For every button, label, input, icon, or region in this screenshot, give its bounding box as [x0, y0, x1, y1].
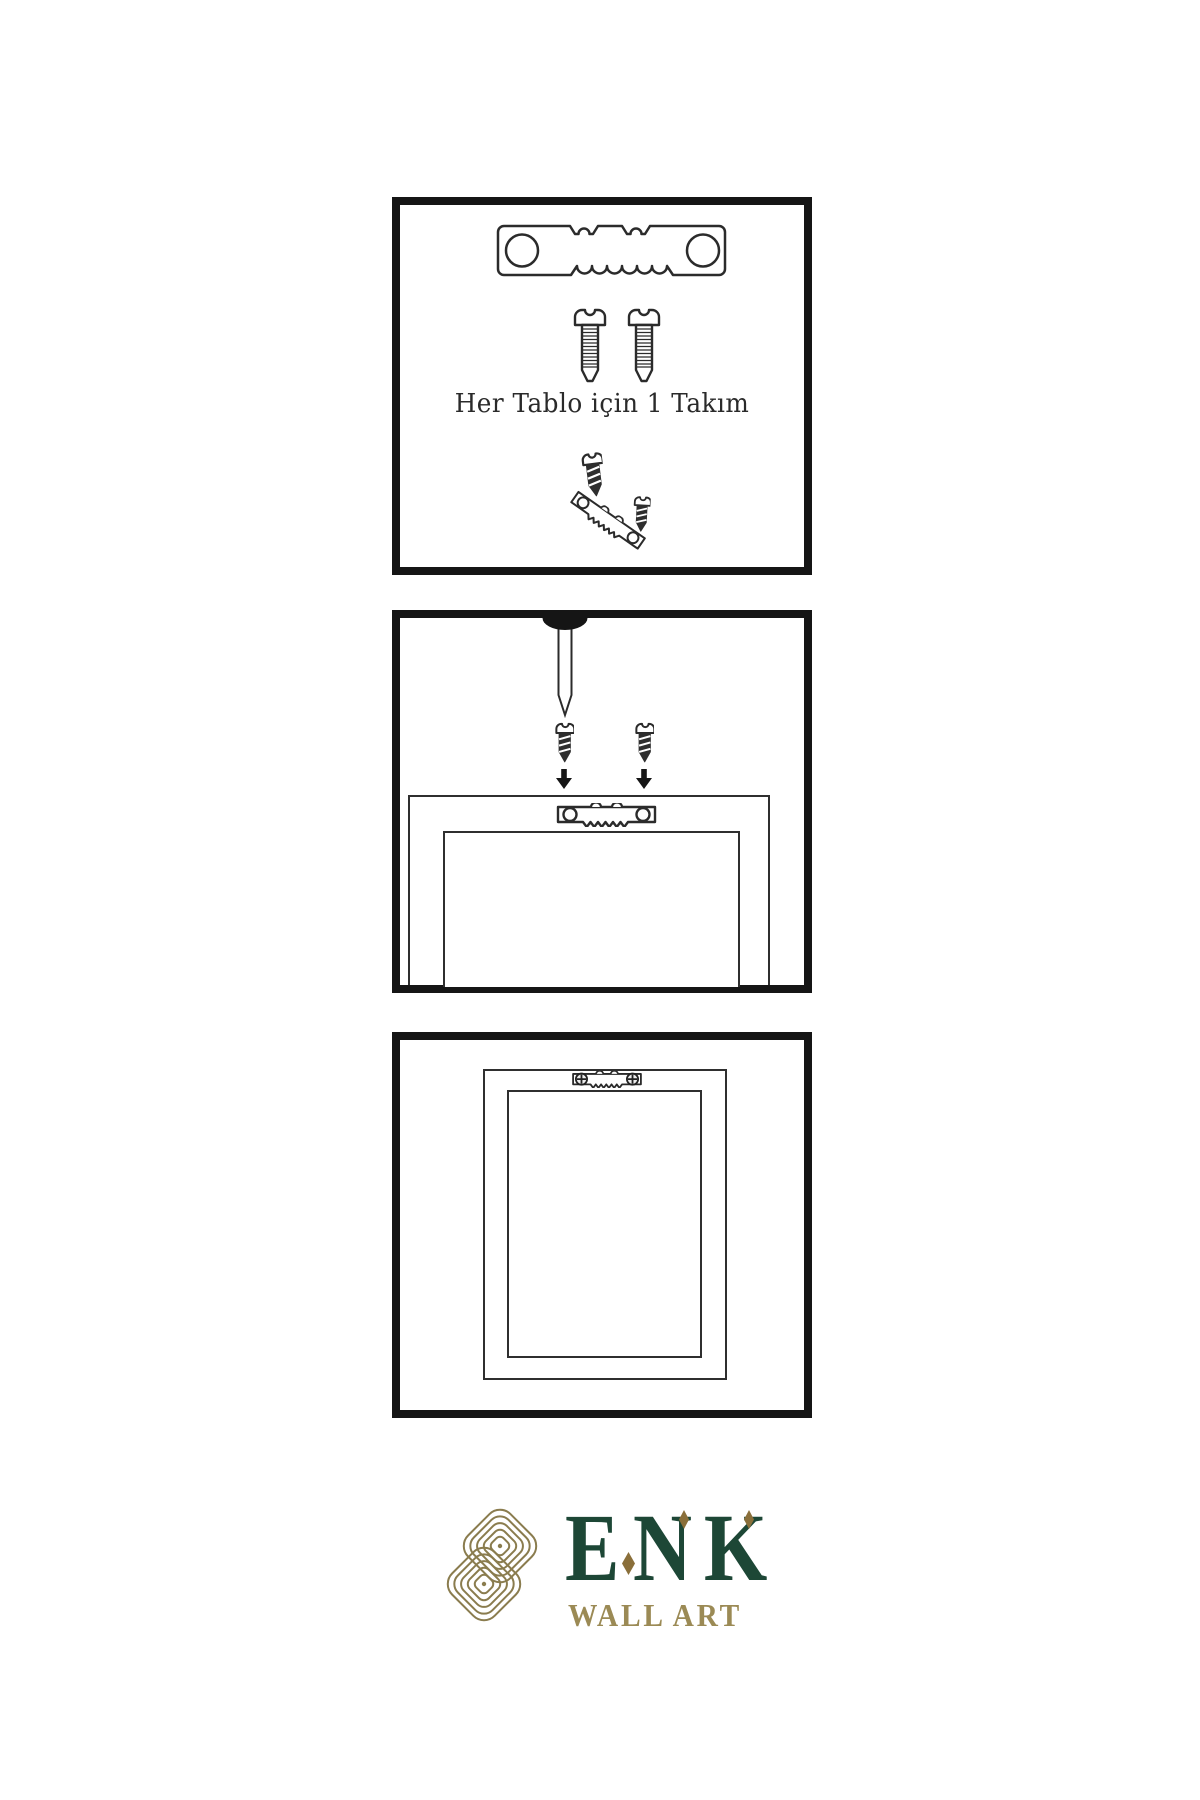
brand-letter-k: K: [704, 1498, 767, 1598]
dark-screw-icon: [635, 720, 654, 764]
kit-caption: Her Tablo için 1 Takım: [410, 389, 794, 419]
assembly-illustration: [575, 448, 675, 558]
wall-nail-icon: [542, 618, 588, 718]
panel-hardware-kit: Her Tablo için 1 Takım: [392, 197, 812, 575]
frame-back-outer: [483, 1069, 727, 1380]
small-dark-screw-icon: [632, 494, 651, 534]
sawtooth-hanger-icon: [495, 223, 728, 278]
phillips-screw-head-icon: [576, 1074, 587, 1085]
brand-name: E N K: [565, 1498, 767, 1598]
hanger-hole-left: [506, 235, 538, 267]
brand-letter-e: E: [565, 1498, 619, 1598]
panel-installation-step: [392, 610, 812, 993]
mounting-screw-icon: [573, 305, 607, 383]
down-arrow-icon: [556, 769, 572, 789]
brand-subtitle: WALL ART: [568, 1597, 742, 1634]
sawtooth-hanger-icon: [555, 803, 658, 827]
panel-mounted-frame: [392, 1032, 812, 1418]
mounting-screw-icon: [627, 305, 661, 383]
dark-screw-icon: [555, 720, 574, 764]
installed-sawtooth-hanger-icon: [571, 1071, 643, 1088]
instruction-sheet: Her Tablo için 1 Takım: [0, 0, 1200, 1800]
phillips-screw-head-icon: [627, 1074, 638, 1085]
hanger-hole-right: [687, 235, 719, 267]
brand-logo: E N K WALL ART: [430, 1498, 820, 1653]
down-arrow-icon: [636, 769, 652, 789]
frame-back-inner: [443, 831, 740, 987]
frame-back-inner: [507, 1090, 702, 1358]
knot-logo-icon: [438, 1502, 546, 1628]
